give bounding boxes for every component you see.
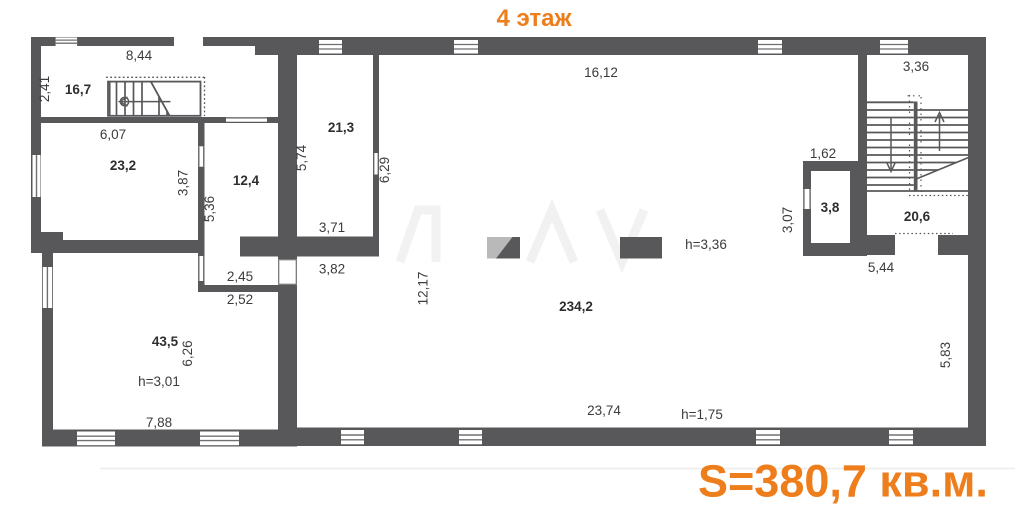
svg-text:20,6: 20,6	[904, 209, 931, 224]
svg-text:3,8: 3,8	[821, 200, 840, 215]
svg-text:16,12: 16,12	[584, 65, 618, 80]
svg-text:3,36: 3,36	[903, 59, 929, 74]
svg-text:h=3,01: h=3,01	[138, 374, 180, 389]
svg-text:7,88: 7,88	[146, 415, 172, 430]
svg-text:2,45: 2,45	[227, 269, 253, 284]
svg-text:12,4: 12,4	[233, 173, 260, 188]
svg-text:16,7: 16,7	[65, 82, 91, 97]
svg-text:3,07: 3,07	[780, 207, 795, 233]
svg-text:12,17: 12,17	[416, 272, 431, 306]
svg-text:23,2: 23,2	[110, 158, 136, 173]
svg-text:h=1,75: h=1,75	[681, 407, 723, 422]
svg-text:2,52: 2,52	[227, 292, 253, 307]
svg-text:5,44: 5,44	[868, 260, 895, 275]
svg-text:8,44: 8,44	[126, 48, 153, 63]
svg-text:6,29: 6,29	[377, 157, 392, 183]
svg-text:1,62: 1,62	[810, 146, 836, 161]
svg-text:234,2: 234,2	[559, 299, 593, 314]
svg-text:43,5: 43,5	[152, 334, 179, 349]
svg-text:23,74: 23,74	[587, 403, 621, 418]
svg-text:S=380,7 кв.м.: S=380,7 кв.м.	[698, 456, 988, 507]
svg-text:5,74: 5,74	[294, 144, 309, 171]
svg-text:6,07: 6,07	[100, 127, 126, 142]
svg-text:3,71: 3,71	[319, 220, 345, 235]
svg-text:5,36: 5,36	[202, 196, 217, 222]
svg-text:5,83: 5,83	[938, 342, 953, 368]
svg-text:3,82: 3,82	[319, 262, 345, 277]
svg-text:2,41: 2,41	[37, 76, 52, 102]
svg-text:4 этаж: 4 этаж	[496, 5, 572, 32]
svg-text:h=3,36: h=3,36	[685, 237, 727, 252]
svg-text:6,26: 6,26	[180, 340, 195, 366]
svg-text:21,3: 21,3	[328, 120, 355, 135]
svg-text:3,87: 3,87	[176, 170, 191, 196]
